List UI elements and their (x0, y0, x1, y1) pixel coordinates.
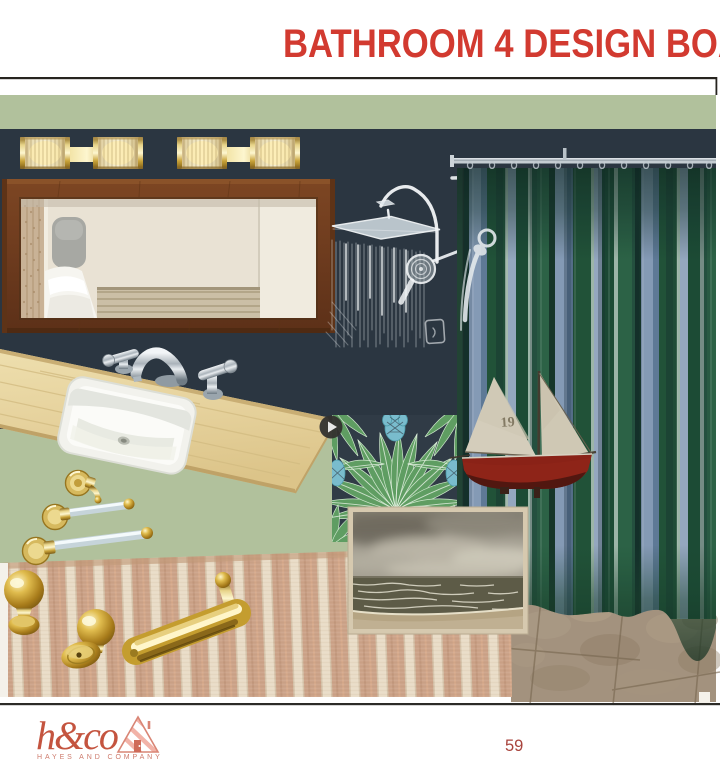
svg-text:19: 19 (500, 415, 515, 431)
svg-text:h&co: h&co (36, 713, 118, 758)
svg-text:59: 59 (505, 737, 523, 755)
svg-text:HAYES AND COMPANY: HAYES AND COMPANY (37, 754, 163, 761)
svg-text:BATHROOM 4 DESIGN BOARD: BATHROOM 4 DESIGN BOARD (283, 22, 720, 66)
